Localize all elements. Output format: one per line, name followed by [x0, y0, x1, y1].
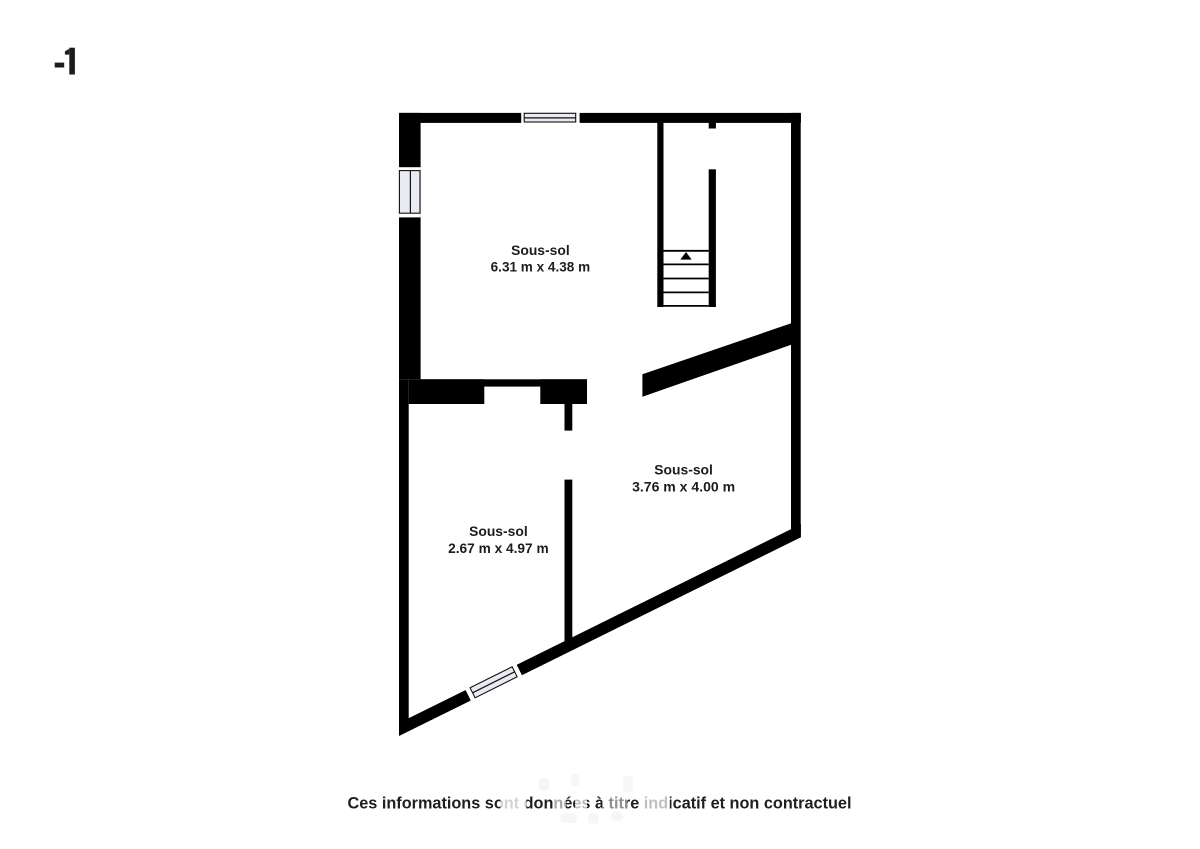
svg-text:2.67 m x 4.97 m: 2.67 m x 4.97 m	[448, 540, 549, 556]
svg-text:Sous-sol: Sous-sol	[511, 242, 570, 258]
svg-text:6.31 m x 4.38 m: 6.31 m x 4.38 m	[491, 259, 591, 275]
svg-text:3.76 m x 4.00 m: 3.76 m x 4.00 m	[632, 479, 735, 495]
svg-text:Sous-sol: Sous-sol	[469, 523, 528, 539]
svg-text:Ces informations sont données: Ces informations sont données à titre in…	[348, 795, 852, 813]
svg-text:Sous-sol: Sous-sol	[654, 462, 713, 478]
